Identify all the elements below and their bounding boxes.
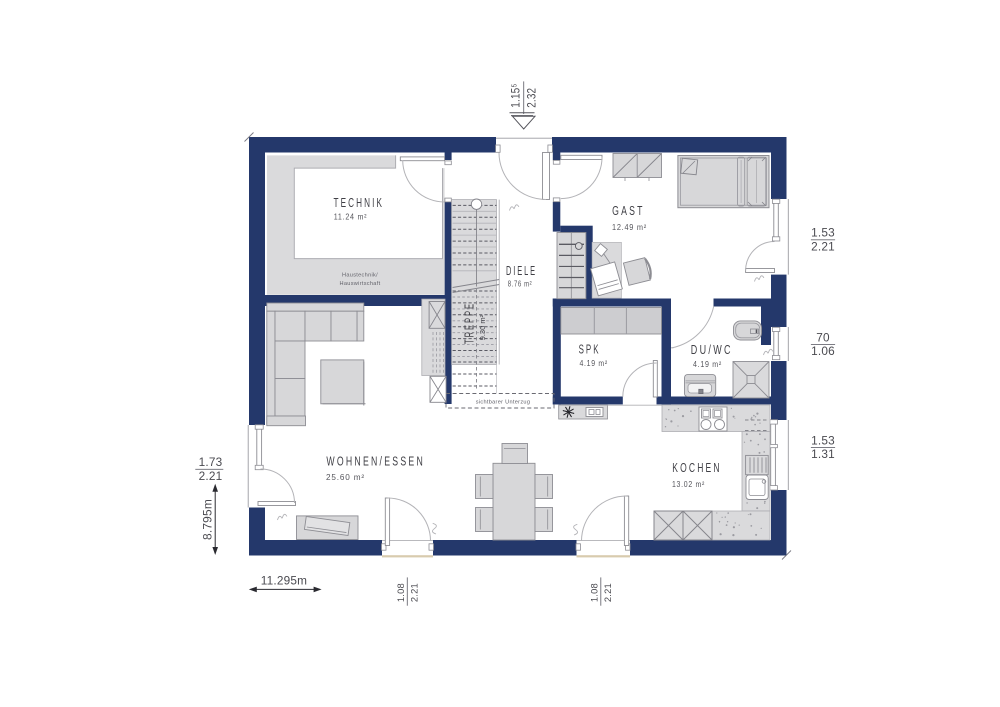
svg-text:sichtbarer Unterzug: sichtbarer Unterzug: [476, 400, 531, 406]
svg-text:1.08: 1.08: [395, 583, 406, 602]
svg-text:TECHNIK: TECHNIK: [334, 196, 385, 210]
svg-text:SPK: SPK: [579, 343, 601, 357]
svg-text:70: 70: [816, 330, 830, 344]
svg-text:4.19 m²: 4.19 m²: [579, 359, 608, 368]
svg-text:1.06: 1.06: [811, 344, 835, 358]
svg-text:1.31: 1.31: [811, 447, 835, 461]
svg-text:DU/WC: DU/WC: [691, 343, 733, 357]
svg-text:8.76 m²: 8.76 m²: [508, 279, 533, 288]
svg-text:1.53: 1.53: [811, 433, 835, 447]
svg-text:25.60 m²: 25.60 m²: [326, 473, 365, 482]
svg-text:Haustechnik/: Haustechnik/: [342, 273, 378, 279]
svg-text:GAST: GAST: [612, 204, 645, 218]
svg-text:2.21: 2.21: [602, 583, 613, 602]
svg-text:11.295m: 11.295m: [261, 574, 307, 588]
svg-text:TREPPE: TREPPE: [462, 302, 476, 344]
svg-text:8.795m: 8.795m: [200, 499, 214, 540]
svg-text:Hauswirtschaft: Hauswirtschaft: [340, 281, 381, 287]
svg-text:KOCHEN: KOCHEN: [672, 461, 722, 475]
svg-text:4.19 m²: 4.19 m²: [693, 360, 722, 369]
svg-text:2.21: 2.21: [199, 469, 223, 483]
svg-text:9.30 m²: 9.30 m²: [478, 314, 487, 340]
svg-text:1.08: 1.08: [589, 583, 600, 602]
svg-text:1.73: 1.73: [199, 455, 223, 469]
svg-text:1.53: 1.53: [811, 226, 835, 240]
svg-text:11.24 m²: 11.24 m²: [334, 213, 368, 222]
svg-text:12.49 m²: 12.49 m²: [612, 223, 647, 232]
svg-text:13.02 m²: 13.02 m²: [672, 480, 705, 489]
svg-text:2.32: 2.32: [524, 88, 538, 108]
svg-text:DIELE: DIELE: [506, 264, 537, 278]
svg-text:WOHNEN/ESSEN: WOHNEN/ESSEN: [326, 454, 425, 468]
svg-text:1.15⁵: 1.15⁵: [509, 83, 523, 108]
svg-text:2.21: 2.21: [409, 583, 420, 602]
svg-text:2.21: 2.21: [811, 239, 835, 253]
